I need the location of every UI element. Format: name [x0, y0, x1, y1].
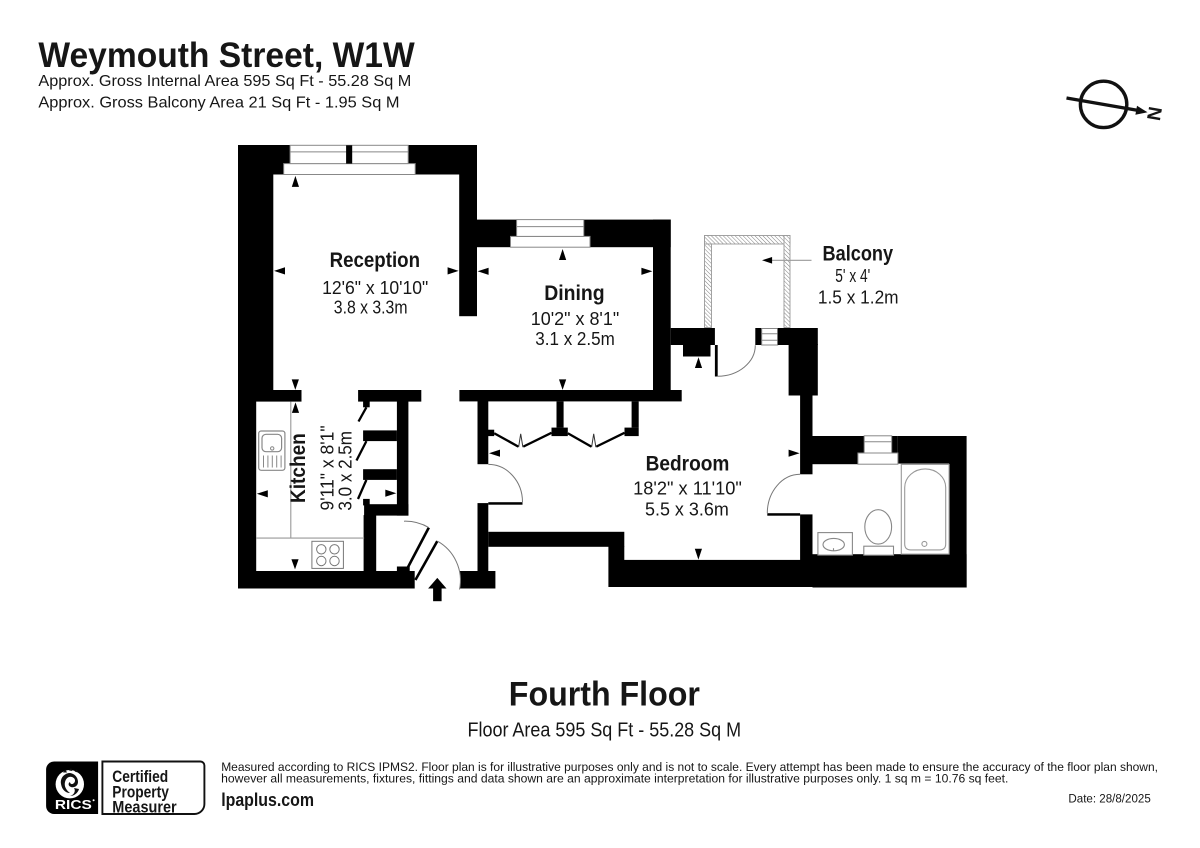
svg-text:lpaplus.com: lpaplus.com [221, 790, 314, 810]
svg-text:Approx. Gross Internal Area 59: Approx. Gross Internal Area 595 Sq Ft - … [38, 73, 411, 90]
svg-text:Measurer: Measurer [112, 798, 177, 817]
svg-text:however all measurements, fixt: however all measurements, fixtures, fitt… [221, 772, 1008, 786]
svg-text:Dining: Dining [544, 282, 605, 305]
svg-text:Kitchen: Kitchen [287, 433, 310, 503]
svg-text:Balcony: Balcony [823, 243, 894, 266]
svg-text:Date: 28/8/2025: Date: 28/8/2025 [1068, 792, 1151, 806]
svg-text:Floor Area 595 Sq Ft - 55.28 S: Floor Area 595 Sq Ft - 55.28 Sq M [468, 719, 742, 742]
svg-text:3.1 x 2.5m: 3.1 x 2.5m [535, 328, 615, 349]
svg-text:Reception: Reception [330, 249, 420, 272]
svg-text:3.0 x 2.5m: 3.0 x 2.5m [334, 431, 355, 511]
svg-text:RICS: RICS [55, 797, 92, 812]
svg-text:Bedroom: Bedroom [646, 453, 730, 476]
svg-text:Approx. Gross Balcony Area 21: Approx. Gross Balcony Area 21 Sq Ft - 1.… [38, 95, 399, 112]
svg-text:3.8 x 3.3m: 3.8 x 3.3m [334, 296, 408, 317]
svg-text:1.5 x 1.2m: 1.5 x 1.2m [818, 287, 899, 308]
svg-text:12'6" x 10'10": 12'6" x 10'10" [322, 277, 428, 298]
svg-text:5' x 4': 5' x 4' [835, 265, 870, 286]
svg-text:Fourth Floor: Fourth Floor [509, 676, 700, 714]
svg-text:Weymouth Street, W1W: Weymouth Street, W1W [38, 36, 415, 75]
svg-text:5.5 x 3.6m: 5.5 x 3.6m [645, 499, 729, 520]
svg-text:18'2" x 11'10": 18'2" x 11'10" [633, 477, 742, 498]
svg-text:10'2" x 8'1": 10'2" x 8'1" [531, 308, 619, 329]
